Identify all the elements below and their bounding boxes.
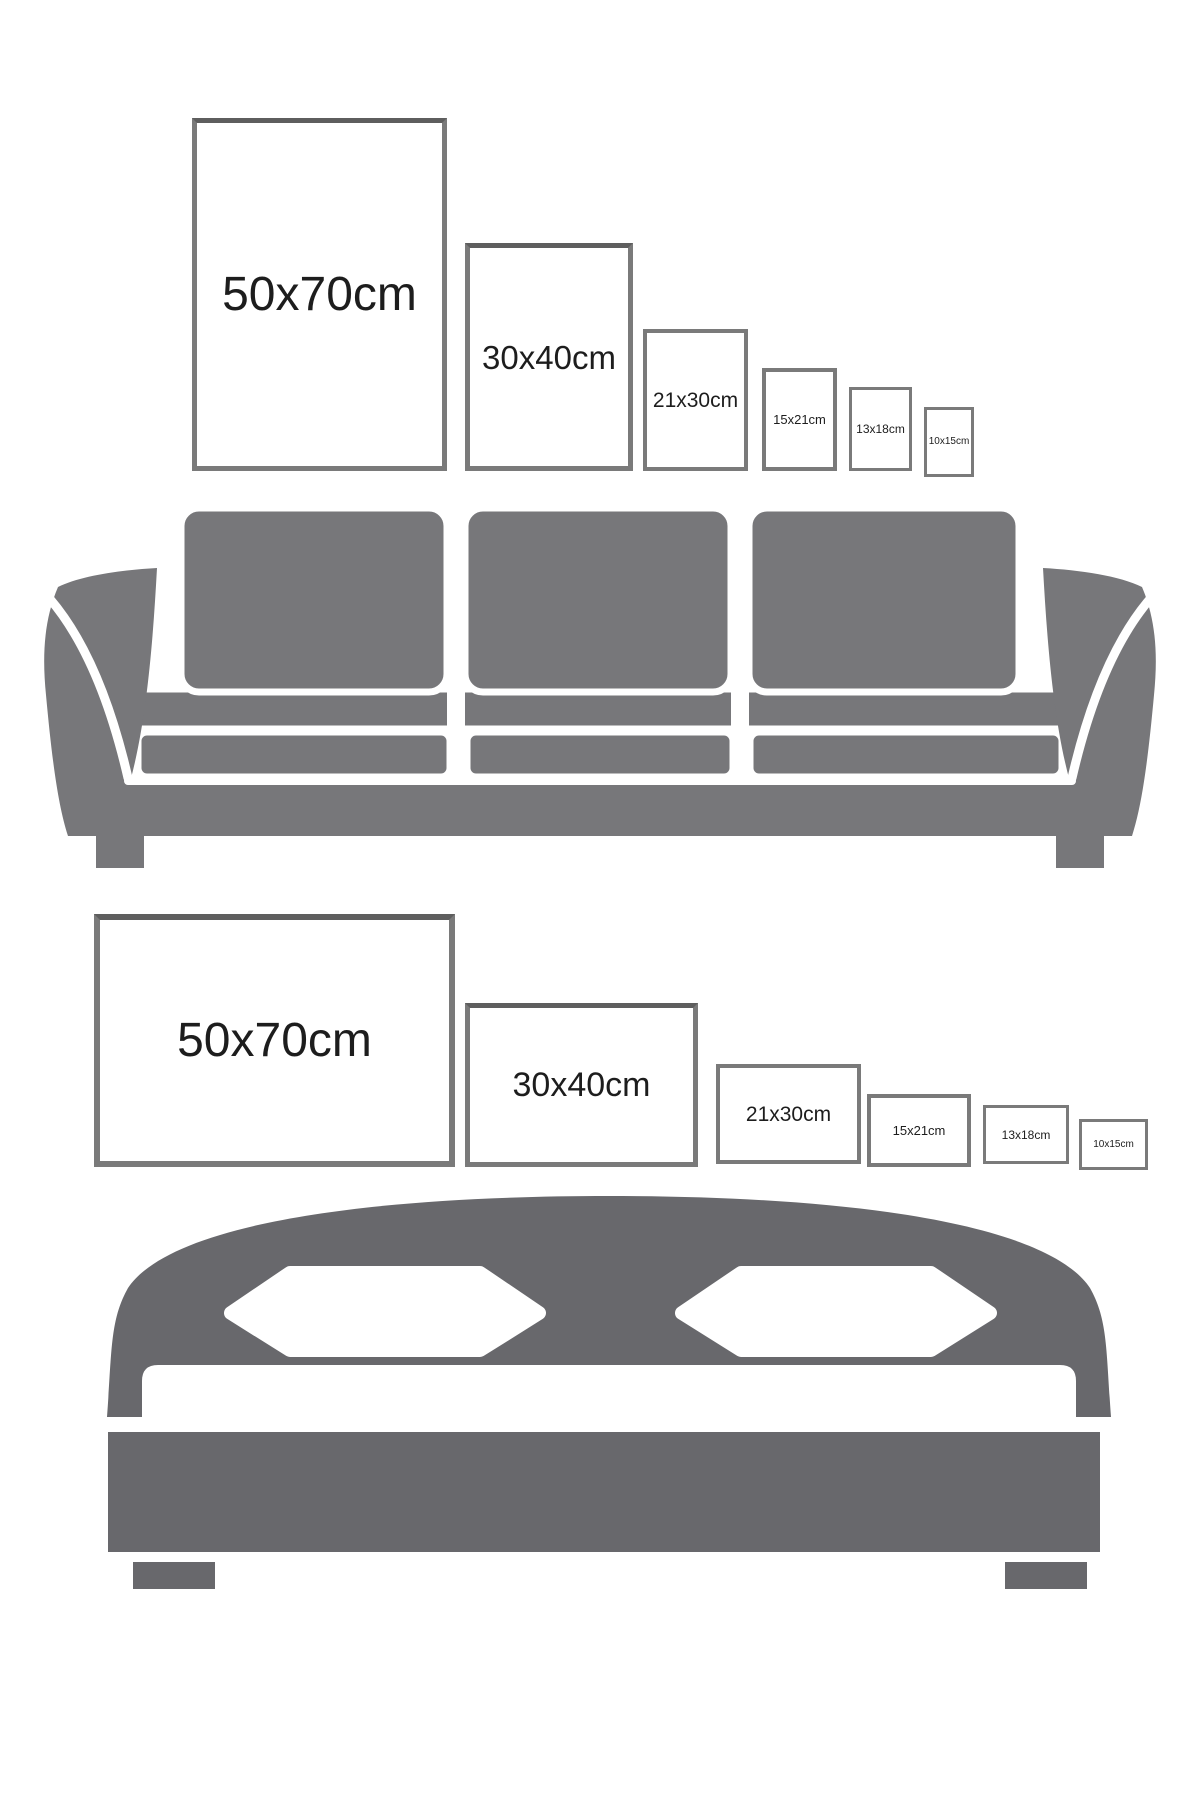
size-frame-10x15-portrait: 10x15cm — [924, 407, 974, 477]
sofa-back-cushion-left — [181, 508, 447, 692]
size-frame-10x15-landscape: 10x15cm — [1079, 1119, 1148, 1170]
bed-icon — [90, 1185, 1130, 1605]
size-frame-13x18-portrait: 13x18cm — [849, 387, 912, 471]
size-frame-13x18-landscape: 13x18cm — [983, 1105, 1069, 1164]
size-frame-21x30-portrait: 21x30cm — [643, 329, 748, 471]
size-frame-21x30-landscape: 21x30cm — [716, 1064, 861, 1164]
sofa-back-cushion-center — [465, 508, 731, 692]
sofa-seat-cushion-left — [138, 732, 450, 777]
size-label: 13x18cm — [856, 423, 905, 435]
bed-foot-right — [1005, 1562, 1087, 1589]
size-label: 30x40cm — [482, 341, 616, 374]
bed-foot-left — [133, 1562, 215, 1589]
bed-pillow-right — [682, 1273, 990, 1350]
size-frame-30x40-landscape: 30x40cm — [465, 1003, 698, 1167]
size-label: 21x30cm — [653, 390, 738, 411]
sofa-deck-separator-right — [731, 684, 749, 732]
size-guide-canvas: 50x70cm30x40cm21x30cm15x21cm13x18cm10x15… — [0, 0, 1200, 1800]
sofa-seat-cushion-right — [750, 732, 1062, 777]
size-label: 15x21cm — [773, 413, 826, 426]
size-label: 50x70cm — [177, 1017, 372, 1065]
sofa-foot-right — [1056, 833, 1104, 868]
bed-pillow-left — [231, 1273, 539, 1350]
size-frame-15x21-portrait: 15x21cm — [762, 368, 837, 471]
bed-base — [108, 1432, 1100, 1552]
size-label: 10x15cm — [1093, 1140, 1134, 1150]
size-label: 10x15cm — [929, 437, 970, 447]
size-label: 21x30cm — [746, 1104, 831, 1125]
size-label: 50x70cm — [222, 271, 417, 319]
sofa-back-cushion-right — [749, 508, 1019, 692]
size-label: 13x18cm — [1002, 1129, 1051, 1141]
sofa-deck-separator-left — [447, 684, 465, 732]
size-frame-30x40-portrait: 30x40cm — [465, 243, 633, 471]
sofa-seat-cushion-center — [467, 732, 733, 777]
size-frame-15x21-landscape: 15x21cm — [867, 1094, 971, 1167]
sofa-foot-left — [96, 833, 144, 868]
sofa-seat-deck — [125, 690, 1075, 728]
size-frame-50x70-landscape: 50x70cm — [94, 914, 455, 1167]
size-label: 30x40cm — [513, 1068, 651, 1102]
sofa-icon — [40, 500, 1160, 875]
size-label: 15x21cm — [893, 1124, 946, 1137]
size-frame-50x70-portrait: 50x70cm — [192, 118, 447, 471]
